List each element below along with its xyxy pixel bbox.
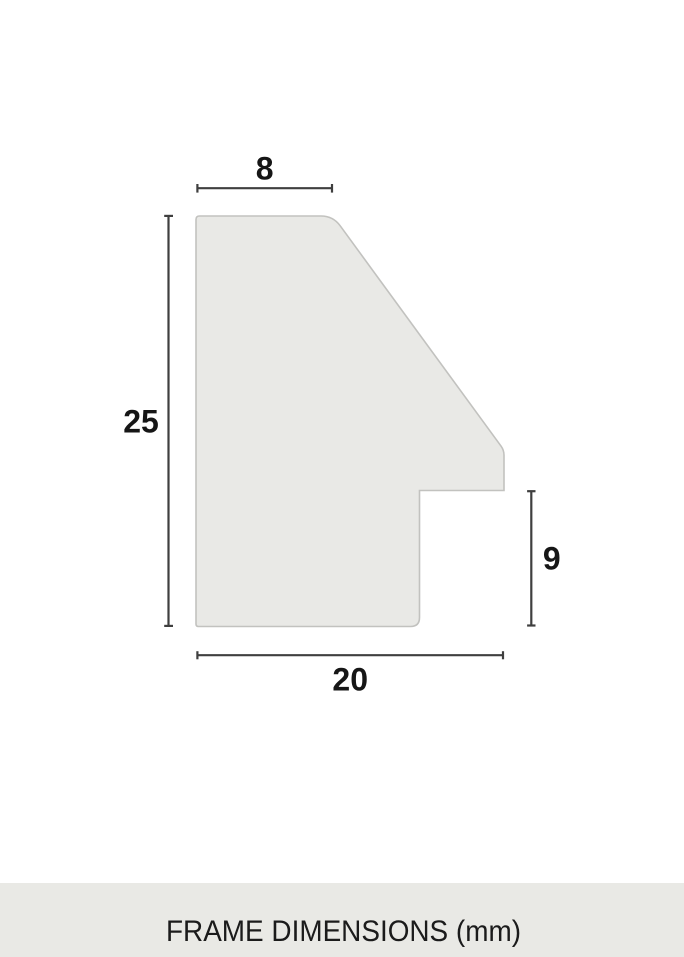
svg-text:25: 25: [123, 404, 159, 440]
svg-text:FRAME DIMENSIONS (mm): FRAME DIMENSIONS (mm): [166, 915, 521, 948]
svg-text:8: 8: [256, 151, 274, 187]
svg-text:9: 9: [543, 541, 561, 577]
svg-text:20: 20: [332, 662, 368, 698]
